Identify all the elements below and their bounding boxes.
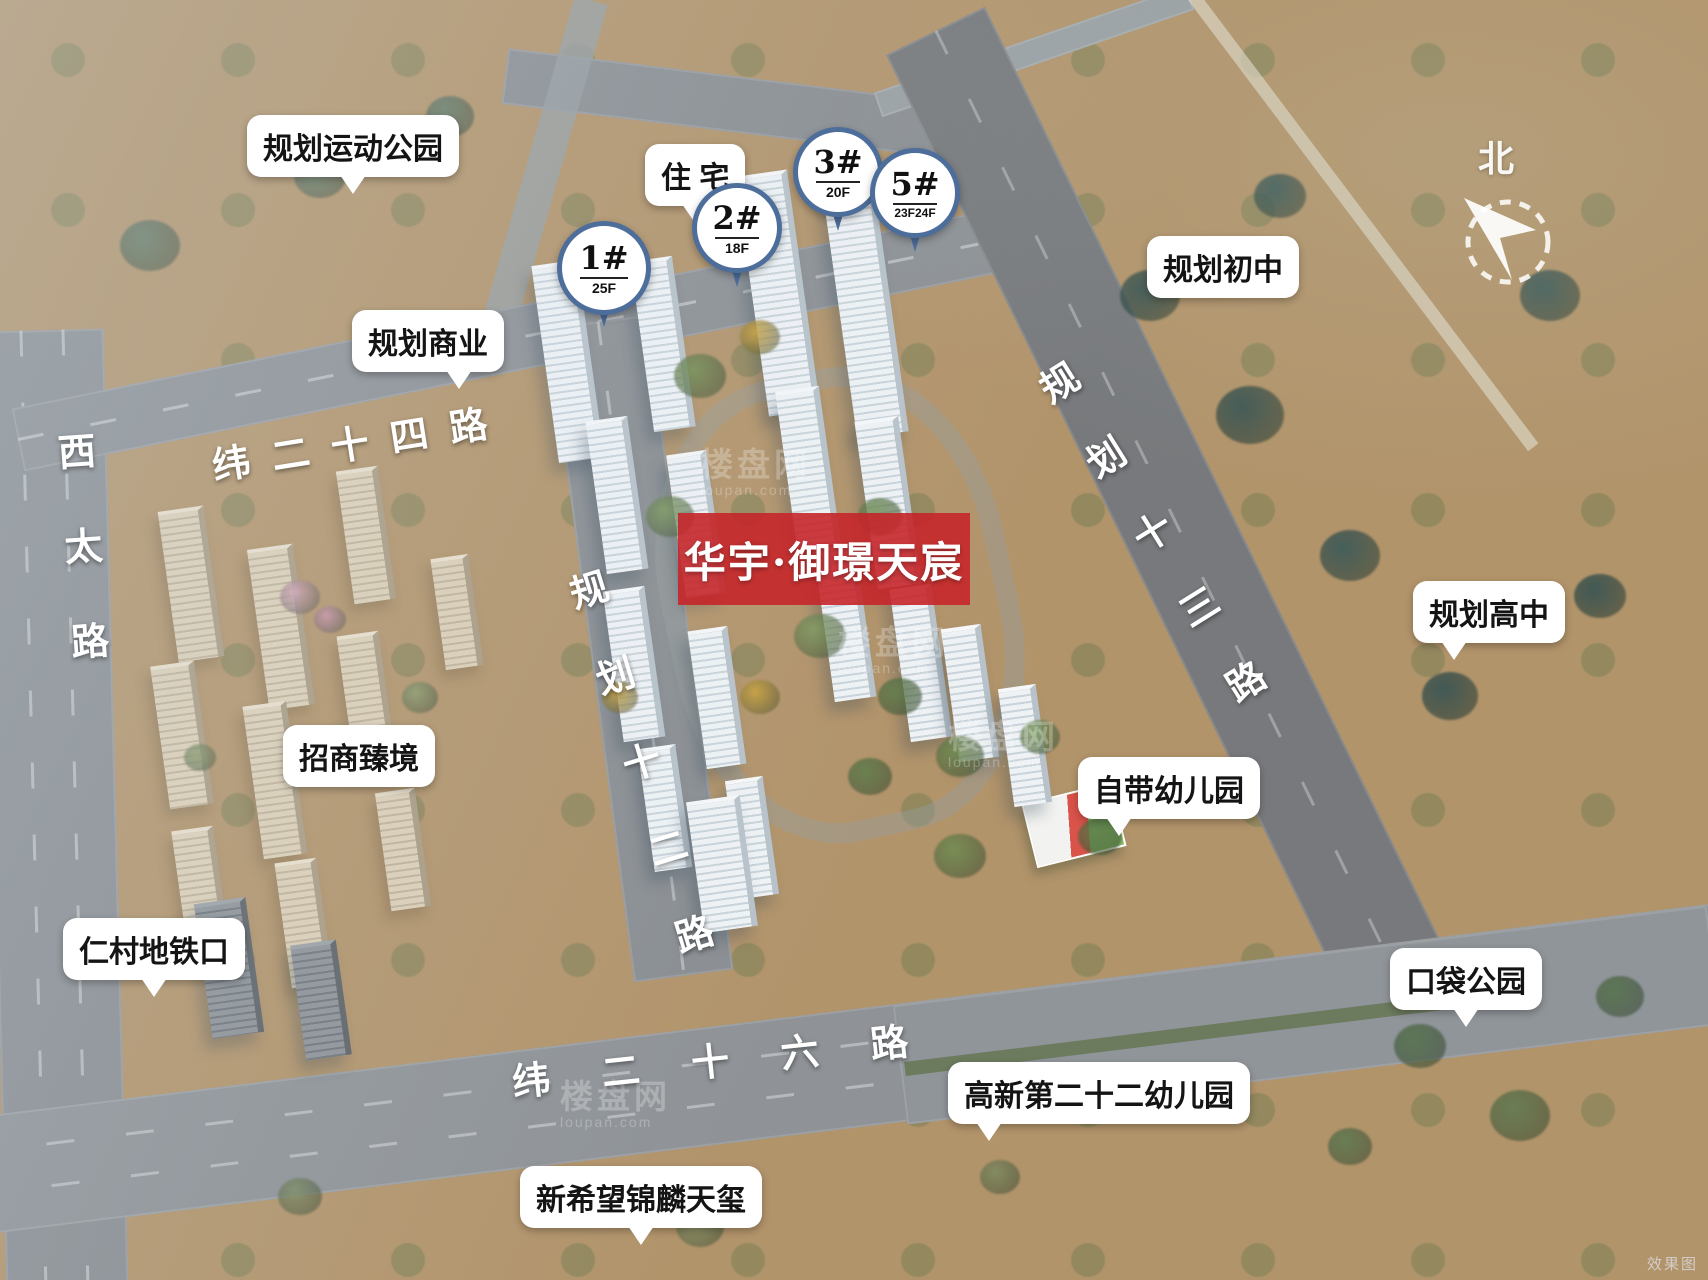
callout-gaoxin-22-kindergarten: 高新第二十二幼儿园 <box>948 1062 1250 1124</box>
callout-pointer-icon <box>1439 638 1469 660</box>
balloon-divider <box>893 203 938 205</box>
callout-pointer-icon <box>626 1223 656 1245</box>
callout-pointer-icon <box>1451 1005 1481 1027</box>
tree <box>120 220 180 271</box>
callout-zhaoshang-zhenjing: 招商臻境 <box>283 725 435 787</box>
balloon-circle: 2#18F <box>692 183 782 273</box>
tower-floors: 23F24F <box>894 207 935 219</box>
tower-number: 5# <box>890 168 939 200</box>
project-name-banner: 华宇·御璟天宸 <box>678 513 970 605</box>
balloon-divider <box>816 181 861 183</box>
compass-north-label: 北 <box>1478 130 1564 182</box>
callout-pointer-icon <box>974 1119 1004 1141</box>
tree <box>980 1160 1020 1194</box>
tower-floors: 20F <box>826 185 850 199</box>
callout-label: 规划运动公园 <box>263 133 443 166</box>
tree <box>1320 530 1380 581</box>
aerial-site-plan: 楼盘网loupan.com楼盘网loupan.com楼盘网loupan.com楼… <box>0 0 1708 1280</box>
tree <box>1394 1024 1446 1068</box>
callout-label: 仁村地铁口 <box>79 936 229 969</box>
tower-number: 1# <box>579 242 628 274</box>
callout-xinxiwang-jinlin-tianxi: 新希望锦麟天玺 <box>520 1166 762 1228</box>
callout-own-kindergarten: 自带幼儿园 <box>1078 757 1260 819</box>
tree <box>1490 1090 1550 1141</box>
callout-rencun-metro-entrance: 仁村地铁口 <box>63 918 245 980</box>
tower-floors: 25F <box>592 281 616 295</box>
balloon-tower-5: 5#23F24F <box>870 148 960 238</box>
callout-pocket-park: 口袋公园 <box>1390 948 1542 1010</box>
tree <box>1020 720 1060 754</box>
balloon-circle: 5#23F24F <box>870 148 960 238</box>
callout-label: 自带幼儿园 <box>1094 775 1244 808</box>
tower-number: 3# <box>813 146 862 178</box>
tower-floors: 18F <box>725 241 749 255</box>
callout-label: 规划商业 <box>368 328 488 361</box>
tree <box>794 614 846 658</box>
tree <box>1254 174 1306 218</box>
tower-number: 2# <box>712 202 761 234</box>
tree <box>1596 976 1644 1017</box>
tree <box>1216 386 1284 444</box>
callout-label: 新希望锦麟天玺 <box>536 1184 746 1217</box>
balloon-divider <box>580 277 627 279</box>
callout-planned-sports-park: 规划运动公园 <box>247 115 459 177</box>
callout-label: 高新第二十二幼儿园 <box>964 1080 1234 1113</box>
balloon-divider <box>715 237 760 239</box>
callout-planned-senior-high: 规划高中 <box>1413 581 1565 643</box>
rendering-disclaimer: 效果图 <box>1647 1253 1698 1274</box>
callout-pointer-icon <box>139 975 169 997</box>
tree <box>740 680 780 714</box>
balloon-tower-1: 1#25F <box>557 221 651 315</box>
tree <box>280 580 320 614</box>
tree <box>674 354 726 398</box>
compass-dial-icon <box>1448 182 1564 298</box>
balloon-circle: 1#25F <box>557 221 651 315</box>
tree <box>936 736 984 777</box>
tree <box>184 744 216 771</box>
callout-planned-commercial: 规划商业 <box>352 310 504 372</box>
balloon-tower-2: 2#18F <box>692 183 782 273</box>
callout-pointer-icon <box>338 172 368 194</box>
callout-planned-junior-high: 规划初中 <box>1147 236 1299 298</box>
project-name: 华宇·御璟天宸 <box>684 529 965 590</box>
tree <box>1422 672 1478 720</box>
callout-label: 规划初中 <box>1163 254 1283 287</box>
callout-pointer-icon <box>1104 814 1134 836</box>
callout-label: 招商臻境 <box>299 743 419 776</box>
callout-label: 规划高中 <box>1429 599 1549 632</box>
tree <box>1574 574 1626 618</box>
callout-pointer-icon <box>444 367 474 389</box>
callout-label: 口袋公园 <box>1406 966 1526 999</box>
tree <box>934 834 986 878</box>
tree <box>740 320 780 354</box>
compass: 北 <box>1448 130 1564 303</box>
tree <box>314 606 346 633</box>
tree <box>402 682 438 713</box>
